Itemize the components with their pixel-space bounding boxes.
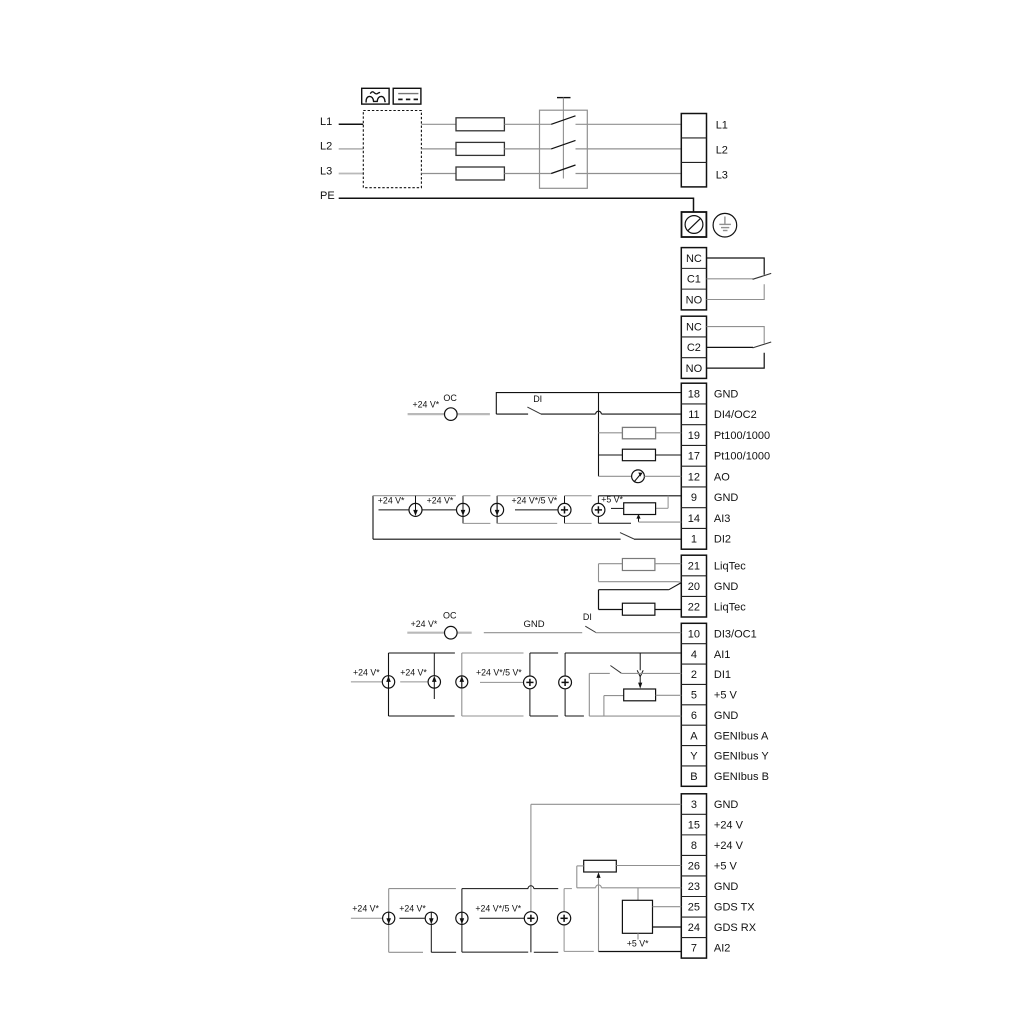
svg-text:8: 8: [691, 840, 697, 852]
svg-text:AI1: AI1: [714, 649, 731, 661]
svg-text:GDS TX: GDS TX: [714, 902, 755, 914]
svg-text:PE: PE: [320, 190, 335, 202]
svg-text:12: 12: [688, 471, 700, 483]
svg-text:GND: GND: [714, 799, 739, 811]
svg-text:GENIbus B: GENIbus B: [714, 771, 769, 783]
svg-text:C2: C2: [687, 342, 701, 354]
svg-text:6: 6: [691, 710, 697, 722]
svg-text:+24 V*: +24 V*: [400, 667, 427, 677]
svg-text:+24 V*/5 V*: +24 V*/5 V*: [476, 667, 522, 677]
svg-text:15: 15: [688, 820, 700, 832]
svg-text:NO: NO: [686, 363, 703, 375]
svg-text:10: 10: [688, 628, 700, 640]
svg-text:Pt100/1000: Pt100/1000: [714, 451, 770, 463]
svg-text:GDS RX: GDS RX: [714, 922, 757, 934]
svg-text:AI2: AI2: [714, 943, 731, 955]
svg-text:LiqTec: LiqTec: [714, 602, 746, 614]
svg-text:+24 V*: +24 V*: [353, 667, 380, 677]
svg-text:GENIbus Y: GENIbus Y: [714, 751, 769, 763]
svg-text:Pt100/1000: Pt100/1000: [714, 430, 770, 442]
svg-text:AI3: AI3: [714, 513, 731, 525]
svg-text:19: 19: [688, 430, 700, 442]
svg-text:20: 20: [688, 581, 700, 593]
svg-text:9: 9: [691, 492, 697, 504]
svg-text:+24 V*: +24 V*: [411, 619, 438, 629]
svg-text:L1: L1: [716, 119, 728, 131]
svg-text:C1: C1: [687, 274, 701, 286]
svg-text:+24 V*/5 V*: +24 V*/5 V*: [475, 903, 521, 913]
svg-text:DI2: DI2: [714, 534, 731, 546]
svg-text:+24 V*: +24 V*: [399, 903, 426, 913]
svg-text:23: 23: [688, 881, 700, 893]
svg-text:L3: L3: [716, 170, 728, 182]
svg-text:DI3/OC1: DI3/OC1: [714, 628, 757, 640]
svg-text:B: B: [690, 771, 697, 783]
svg-text:+5 V*: +5 V*: [601, 494, 623, 504]
svg-text:NO: NO: [686, 294, 703, 306]
svg-text:+24 V: +24 V: [714, 840, 744, 852]
svg-text:+24 V*/5 V*: +24 V*/5 V*: [512, 495, 558, 505]
svg-text:GND: GND: [714, 388, 739, 400]
svg-text:+24 V*: +24 V*: [427, 495, 454, 505]
svg-text:Y: Y: [690, 751, 698, 763]
svg-text:+24 V*: +24 V*: [352, 903, 379, 913]
svg-text:L2: L2: [320, 141, 332, 153]
svg-text:5: 5: [691, 690, 697, 702]
svg-text:11: 11: [688, 409, 699, 421]
svg-text:NC: NC: [686, 321, 702, 333]
svg-text:L1: L1: [320, 116, 332, 128]
svg-text:2: 2: [691, 669, 697, 681]
svg-text:A: A: [690, 730, 698, 742]
svg-text:DI: DI: [583, 612, 592, 622]
svg-text:OC: OC: [443, 611, 457, 621]
svg-text:GENIbus A: GENIbus A: [714, 730, 769, 742]
svg-text:GND: GND: [714, 581, 739, 593]
svg-text:7: 7: [691, 943, 697, 955]
svg-text:21: 21: [688, 560, 700, 572]
svg-text:DI1: DI1: [714, 669, 731, 681]
svg-text:GND: GND: [714, 492, 739, 504]
svg-text:+5 V: +5 V: [714, 861, 738, 873]
svg-text:GND: GND: [524, 619, 545, 630]
svg-text:DI4/OC2: DI4/OC2: [714, 409, 757, 421]
svg-text:22: 22: [688, 602, 700, 614]
svg-text:L3: L3: [320, 166, 332, 178]
svg-text:17: 17: [688, 451, 700, 463]
svg-text:OC: OC: [443, 393, 457, 403]
svg-text:+5 V*: +5 V*: [627, 938, 649, 948]
svg-text:+24 V*: +24 V*: [378, 495, 405, 505]
svg-text:24: 24: [688, 922, 700, 934]
svg-text:18: 18: [688, 388, 700, 400]
svg-text:DI: DI: [533, 394, 542, 404]
svg-text:4: 4: [691, 649, 697, 661]
svg-text:+24 V*: +24 V*: [413, 400, 440, 410]
svg-text:26: 26: [688, 861, 700, 873]
svg-text:25: 25: [688, 902, 700, 914]
svg-text:3: 3: [691, 799, 697, 811]
svg-text:14: 14: [688, 513, 700, 525]
svg-text:+24 V: +24 V: [714, 820, 744, 832]
svg-text:GND: GND: [714, 710, 739, 722]
svg-text:GND: GND: [714, 881, 739, 893]
svg-text:AO: AO: [714, 471, 730, 483]
svg-text:L2: L2: [716, 145, 728, 157]
svg-text:LiqTec: LiqTec: [714, 560, 746, 572]
svg-text:1: 1: [691, 534, 697, 546]
svg-text:NC: NC: [686, 253, 702, 265]
svg-text:+5 V: +5 V: [714, 690, 738, 702]
